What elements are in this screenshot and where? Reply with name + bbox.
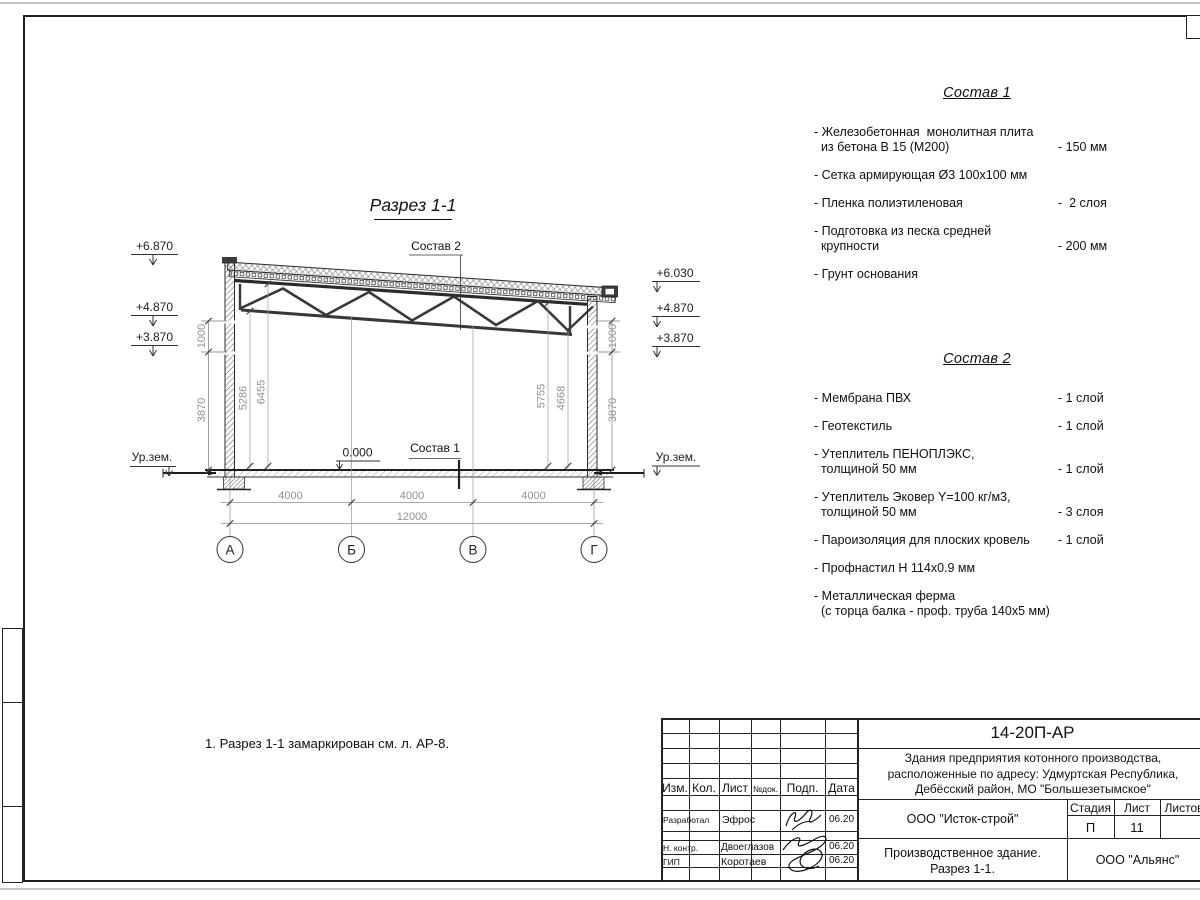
- dim-4668: 4668: [556, 386, 568, 410]
- col-list: Лист: [719, 781, 751, 795]
- signature: [777, 832, 835, 878]
- sostav2-title: Состав 2: [798, 352, 1156, 367]
- truss-bottom-chord: [241, 310, 572, 335]
- dim-5755: 5755: [536, 384, 548, 408]
- project-line: расположенные по адресу: Удмуртская Респ…: [862, 767, 1200, 781]
- item-label: - Геотекстиль: [814, 419, 1058, 434]
- interior-dim-labels: 5286 6455 5755 4668: [238, 380, 568, 410]
- vertical-dims-left: 1000 3870: [196, 318, 227, 473]
- left-wall: [225, 263, 235, 478]
- sostav1-callout: Состав 1: [409, 441, 461, 489]
- list-item: - Геотекстиль - 1 слой: [798, 419, 1156, 434]
- list-item: - Подготовка из песка средней крупности …: [798, 224, 1156, 254]
- elevation-6030: +6.030: [656, 266, 693, 280]
- item-label: - Утеплитель Эковер Y=100 кг/м3, толщино…: [814, 490, 1058, 520]
- page-edge-top: [0, 2, 1200, 4]
- roof-package: [227, 262, 616, 306]
- staff-name: Эфрос: [722, 814, 755, 826]
- stage-value: П: [1067, 820, 1114, 835]
- item-value: - 1 слой: [1058, 391, 1156, 406]
- axis-V: В: [468, 543, 477, 558]
- page-edge-bottom: [0, 888, 1200, 890]
- item-value: - 1 слой: [1058, 462, 1156, 477]
- section-drawing: Разрез 1-1: [80, 185, 750, 580]
- section-title: Разрез 1-1: [370, 195, 457, 220]
- col-podp: Подп.: [780, 781, 825, 795]
- horizontal-dimensions: 4000 4000 4000 12000: [221, 477, 603, 537]
- left-stamp-cell: [2, 806, 23, 883]
- axis-bubbles: А Б В Г: [217, 537, 607, 563]
- drawing-sheet: { "drawing": { "title": "Разрез 1-1", "s…: [0, 0, 1200, 900]
- axis-A: А: [225, 543, 234, 558]
- object-line: Разрез 1-1.: [858, 862, 1067, 876]
- ground-level-label-right: Ур.зем.: [656, 450, 697, 464]
- item-value: - 150 мм: [1058, 140, 1156, 155]
- sostav2-ref-text: Состав 2: [411, 239, 461, 253]
- list-item: - Мембрана ПВХ - 1 слой: [798, 391, 1156, 406]
- zero-level-text: 0.000: [342, 446, 372, 460]
- item-label: - Мембрана ПВХ: [814, 391, 1058, 406]
- right-footing: [583, 477, 604, 489]
- item-value: - 200 мм: [1058, 239, 1156, 254]
- staff-name: Коротаев: [721, 856, 766, 868]
- dim-1000-left: 1000: [196, 324, 208, 348]
- organization: ООО "Альянс": [1067, 853, 1200, 867]
- dim-4000-3: 4000: [521, 490, 545, 502]
- axis-B: Б: [347, 543, 356, 558]
- project-line: Дебёсский район, МО "Большезетымское": [862, 782, 1200, 796]
- dim-4000-2: 4000: [400, 490, 424, 502]
- col-ndok: №док.: [751, 784, 780, 794]
- col-data: Дата: [825, 781, 858, 795]
- staff-role: Н. контр.: [663, 843, 698, 853]
- left-footing: [224, 477, 245, 489]
- axis-G: Г: [590, 543, 598, 558]
- dim-3870-left: 3870: [196, 398, 208, 422]
- doc-number: 14-20П-АР: [860, 723, 1200, 743]
- list-item: - Утеплитель ПЕНОПЛЭКС, толщиной 50 мм -…: [798, 447, 1156, 477]
- sostav1-title: Состав 1: [798, 86, 1156, 101]
- item-label: - Подготовка из песка средней крупности: [814, 224, 1058, 254]
- drawing-note: 1. Разрез 1-1 замаркирован см. л. АР-8.: [205, 736, 449, 751]
- object-line: Производственное здание.: [858, 846, 1067, 860]
- item-value: - 1 слой: [1058, 533, 1156, 548]
- dim-12000: 12000: [397, 511, 428, 523]
- list-item: - Пароизоляция для плоских кровель - 1 с…: [798, 533, 1156, 548]
- item-label: - Грунт основания: [814, 267, 1058, 282]
- item-label: - Пленка полиэтиленовая: [814, 196, 1058, 211]
- item-label: - Пароизоляция для плоских кровель: [814, 533, 1058, 548]
- dim-6455: 6455: [256, 380, 268, 404]
- elevation-4870-right: +4.870: [656, 301, 693, 315]
- list-item: - Пленка полиэтиленовая - 2 слоя: [798, 196, 1156, 211]
- list-item: - Утеплитель Эковер Y=100 кг/м3, толщино…: [798, 490, 1156, 520]
- staff-role: ГИП: [663, 857, 680, 867]
- sheet-value: 11: [1114, 820, 1160, 835]
- elevation-markers-left: +6.870 +4.870 +3.870 Ур.зем.: [130, 239, 178, 476]
- project-line: Здания предприятия котонного производств…: [862, 751, 1200, 765]
- list-item: - Железобетонная монолитная плита из бет…: [798, 125, 1156, 155]
- col-izm: Изм.: [661, 781, 689, 795]
- list-item: - Грунт основания: [798, 267, 1156, 282]
- item-value: - 2 слоя: [1058, 196, 1156, 211]
- left-stamp-cell: [2, 628, 23, 703]
- item-label: - Утеплитель ПЕНОПЛЭКС, толщиной 50 мм: [814, 447, 1058, 477]
- dim-4000-1: 4000: [278, 490, 302, 502]
- col-kol: Кол.: [689, 781, 719, 795]
- sheets-label: Листов: [1160, 801, 1200, 815]
- section-title-text: Разрез 1-1: [370, 195, 457, 215]
- left-stamp-cell: [2, 702, 23, 808]
- item-label: - Профнастил Н 114x0.9 мм: [814, 561, 1058, 576]
- elevation-4870-left: +4.870: [136, 300, 173, 314]
- zero-level-mark: 0.000: [336, 446, 380, 470]
- contractor: ООО "Исток-строй": [858, 812, 1067, 826]
- sheet-label: Лист: [1114, 801, 1160, 815]
- dim-5286: 5286: [238, 386, 250, 410]
- list-item: - Металлическая ферма (с торца балка - п…: [798, 589, 1156, 619]
- vertical-dims-right: 1000 3870: [598, 318, 620, 473]
- sostav1-list: Состав 1 - Железобетонная монолитная пли…: [798, 86, 1156, 295]
- elevation-3870-right: +3.870: [656, 331, 693, 345]
- top-right-stamp-box: [1186, 15, 1200, 39]
- item-label: - Металлическая ферма (с торца балка - п…: [814, 589, 1058, 619]
- item-label: - Сетка армирующая Ø3 100x100 мм: [814, 168, 1058, 183]
- item-value: - 1 слой: [1058, 419, 1156, 434]
- item-label: - Железобетонная монолитная плита из бет…: [814, 125, 1058, 155]
- list-item: - Сетка армирующая Ø3 100x100 мм: [798, 168, 1156, 183]
- signature: [782, 806, 824, 833]
- elevation-6870: +6.870: [136, 239, 173, 253]
- dim-1000-right: 1000: [607, 324, 619, 348]
- right-wall: [588, 297, 598, 478]
- item-value: - 3 слоя: [1058, 505, 1156, 520]
- sostav1-ref-text: Состав 1: [410, 441, 460, 455]
- staff-name: Двоеглазов: [721, 842, 774, 853]
- left-wall-cap: [223, 258, 237, 264]
- floor: [163, 469, 644, 490]
- sostav2-list: Состав 2 - Мембрана ПВХ - 1 слой - Геоте…: [798, 352, 1156, 632]
- dim-3870-right: 3870: [607, 398, 619, 422]
- staff-date: 06.20: [825, 814, 858, 825]
- elevation-markers-right: +6.030 +4.870 +3.870 Ур.зем.: [652, 266, 700, 476]
- list-item: - Профнастил Н 114x0.9 мм: [798, 561, 1156, 576]
- stage-label: Стадия: [1067, 801, 1114, 815]
- floor-slab: [207, 470, 613, 477]
- ground-level-label-left: Ур.зем.: [132, 450, 173, 464]
- staff-role: Разработал: [663, 815, 709, 825]
- elevation-3870-left: +3.870: [136, 330, 173, 344]
